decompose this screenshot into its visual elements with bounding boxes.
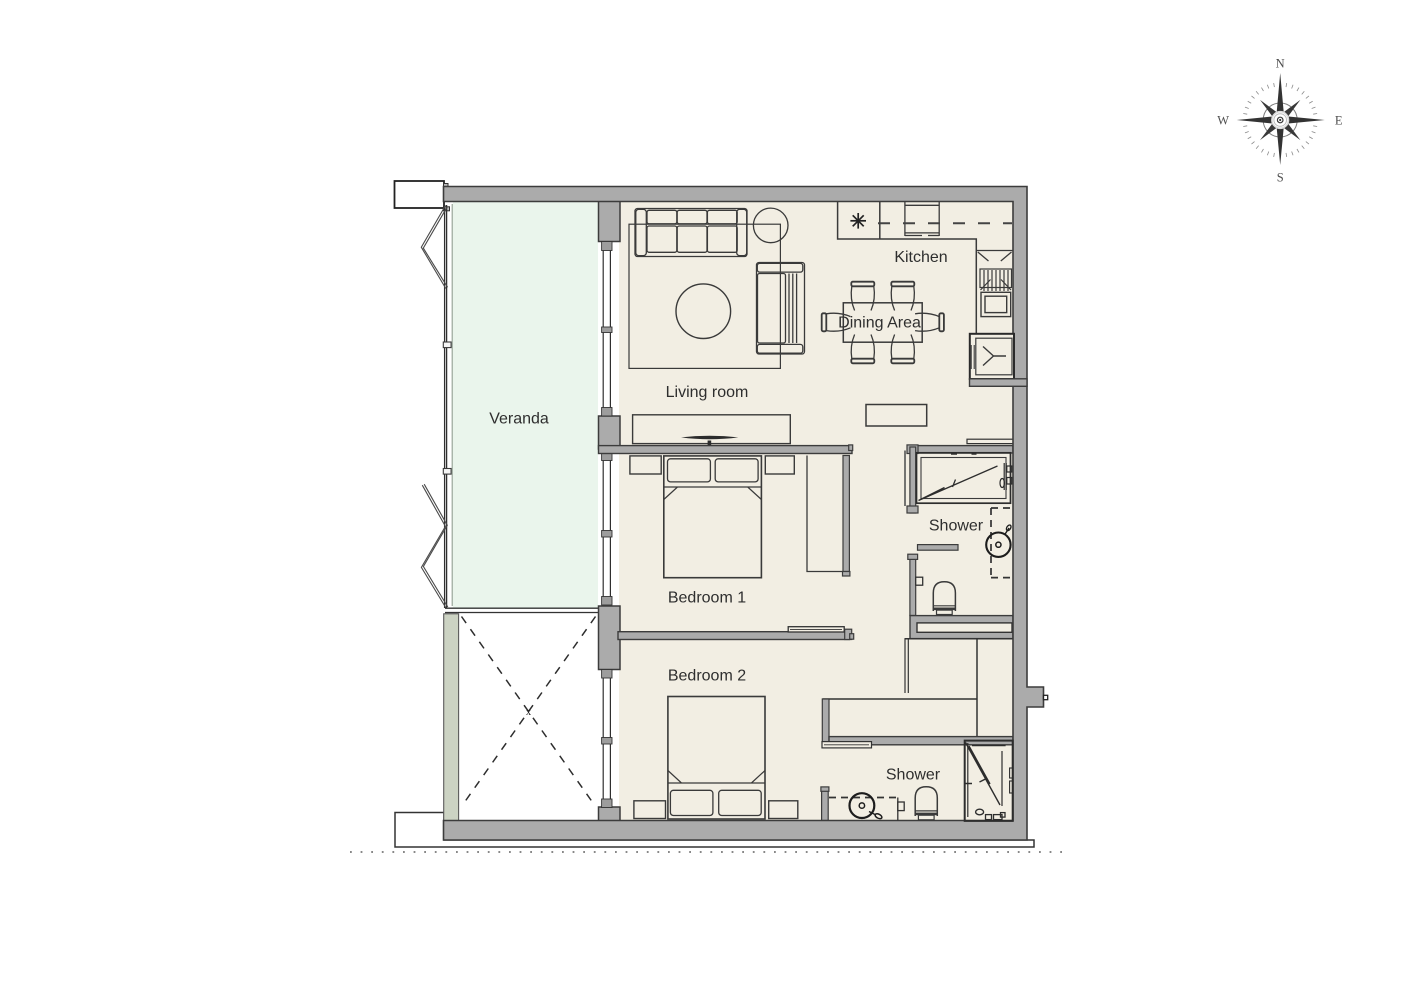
svg-text:S: S [1277, 171, 1284, 185]
svg-text:E: E [1335, 113, 1343, 127]
svg-text:Shower: Shower [886, 767, 941, 784]
svg-text:Bedroom 2: Bedroom 2 [668, 668, 746, 685]
svg-text:x: x [526, 707, 532, 718]
svg-text:W: W [1217, 113, 1229, 127]
svg-text:N: N [1276, 57, 1285, 71]
svg-text:Veranda: Veranda [489, 411, 549, 428]
svg-text:Bedroom 1: Bedroom 1 [668, 590, 746, 607]
svg-text:Living room: Living room [666, 384, 749, 401]
svg-text:Kitchen: Kitchen [894, 249, 947, 266]
svg-text:Dining Area: Dining Area [838, 315, 921, 332]
svg-text:Shower: Shower [929, 518, 984, 535]
